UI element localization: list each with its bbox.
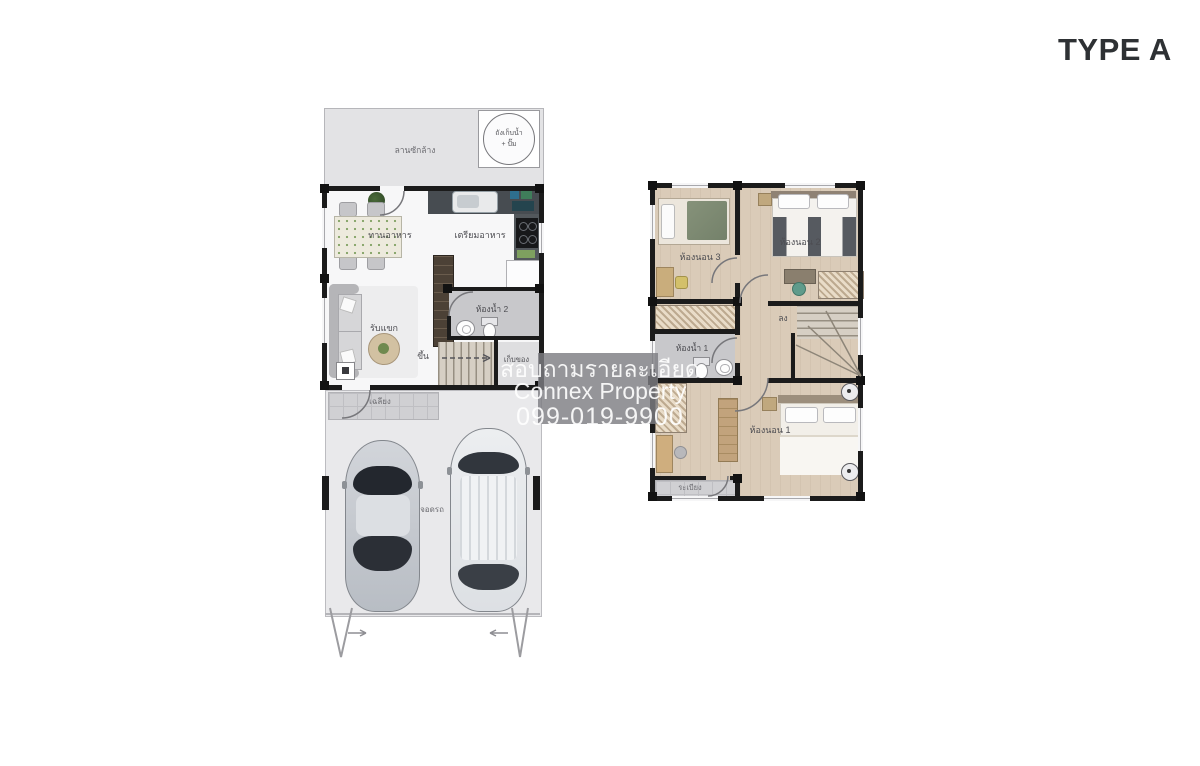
- wall: [404, 186, 544, 191]
- abs: [356, 495, 410, 536]
- mir: [342, 481, 347, 489]
- element: [348, 630, 366, 636]
- kitchen-item-dark: [512, 201, 534, 211]
- window: [322, 208, 327, 248]
- column-post: [535, 184, 544, 193]
- column-post: [733, 297, 742, 306]
- column-post: [533, 476, 540, 510]
- wall: [322, 186, 380, 191]
- window: [785, 183, 835, 188]
- abs: [329, 284, 359, 294]
- wall: [718, 496, 764, 501]
- bath1-sink: [715, 359, 733, 376]
- wall: [655, 329, 737, 334]
- bed1-nightstand: [762, 397, 777, 411]
- column-post: [856, 376, 865, 385]
- bed2-chair: [792, 282, 806, 296]
- laundry-label: ลานซักล้าง: [360, 146, 470, 155]
- element: [720, 364, 729, 373]
- bed3-wardrobe: [655, 305, 737, 331]
- watermark-line3: 099-019-9900: [485, 403, 715, 432]
- kitchen-item-blue: [510, 190, 519, 199]
- window: [539, 223, 544, 253]
- column-post: [535, 284, 544, 293]
- window: [672, 496, 718, 501]
- wall: [650, 239, 655, 341]
- water-tank-pump-icon: ถังเก็บน้ำ + ปั๊ม: [483, 113, 535, 165]
- bed-single: [658, 198, 730, 245]
- element: [462, 325, 471, 334]
- bed1-vanity: [656, 435, 673, 473]
- abs: [342, 367, 349, 374]
- abs: [378, 343, 389, 354]
- column-post: [733, 181, 742, 190]
- bedroom2-label: ห้องนอน 2: [760, 238, 840, 248]
- dining-label: ทานอาหาร: [348, 231, 432, 241]
- abs: [460, 476, 517, 561]
- floor2-plan: ห้องนอน 3 ห้องนอน 2 ห้องน้ำ 1 ลง ห้องนอน…: [650, 183, 868, 501]
- wall: [447, 287, 539, 291]
- car-suv: [450, 428, 527, 612]
- porch-label: เฉลียง: [340, 398, 420, 407]
- abs: [785, 407, 818, 423]
- stairs-up-label: ขึ้น: [410, 352, 436, 361]
- abs: [778, 194, 810, 209]
- column-post: [443, 284, 452, 293]
- column-post: [648, 297, 657, 306]
- dining-chair: [339, 202, 357, 217]
- car-sedan: [345, 440, 420, 612]
- column-post: [322, 476, 329, 510]
- cutting-board: [517, 250, 535, 258]
- sink-basin: [457, 195, 479, 208]
- kitchen-label: เตรียมอาหาร: [438, 231, 522, 241]
- bed2-nightstand: [758, 193, 772, 206]
- glass: [353, 466, 412, 495]
- window: [672, 183, 708, 188]
- ceiling-fixture: [841, 463, 859, 481]
- burner: [528, 235, 537, 244]
- wall: [768, 301, 863, 306]
- tank-label-1: ถังเก็บน้ำ: [495, 128, 522, 139]
- floorplan-sheet: { "page": { "title": "TYPE A" }, "colors…: [0, 0, 1200, 766]
- bathroom2-label: ห้องน้ำ 2: [457, 305, 527, 314]
- coffee-table: [368, 333, 400, 365]
- page-title: TYPE A: [1058, 32, 1172, 68]
- wall: [735, 188, 740, 255]
- burner: [528, 222, 537, 231]
- element: [847, 389, 851, 393]
- abs: [817, 194, 849, 209]
- column-post: [320, 274, 329, 283]
- bedroom1-label: ห้องนอน 1: [728, 426, 812, 436]
- column-post: [733, 474, 742, 483]
- parking-edge: [325, 613, 540, 615]
- wall: [447, 336, 539, 340]
- electric-panel: [336, 362, 355, 380]
- window: [858, 408, 863, 451]
- bed3-desk: [656, 267, 674, 297]
- bed3-chair: [675, 276, 688, 289]
- column-post: [648, 181, 657, 190]
- burner: [519, 222, 528, 231]
- mir: [525, 467, 530, 475]
- stairs-down: [797, 305, 858, 339]
- column-post: [648, 492, 657, 501]
- column-post: [320, 381, 329, 390]
- column-post: [320, 184, 329, 193]
- tank-label-2: + ปั๊ม: [501, 139, 516, 150]
- stairs-down-label: ลง: [768, 314, 798, 323]
- wall: [768, 378, 863, 383]
- column-post: [733, 376, 742, 385]
- abs: [687, 201, 727, 240]
- wall: [322, 248, 327, 298]
- wall: [655, 299, 735, 304]
- glass: [458, 452, 518, 474]
- element: [847, 469, 851, 473]
- glass: [458, 564, 518, 590]
- window: [650, 433, 655, 468]
- wall: [708, 183, 785, 188]
- wall: [791, 333, 795, 378]
- wall: [655, 476, 706, 480]
- column-post: [856, 492, 865, 501]
- window: [650, 205, 655, 239]
- mir: [447, 467, 452, 475]
- abs: [823, 407, 856, 423]
- dining-chair: [367, 202, 385, 217]
- bed1-stool: [674, 446, 687, 459]
- glass: [353, 536, 412, 570]
- window: [858, 318, 863, 355]
- mir: [418, 481, 423, 489]
- column-post: [856, 181, 865, 190]
- abs: [661, 204, 675, 239]
- wall: [735, 283, 740, 335]
- kitchen-item-green: [521, 190, 532, 199]
- bath2-sink: [456, 320, 475, 337]
- watermark-line2: Connex Property: [485, 378, 715, 405]
- balcony-label: ระเบียง: [660, 484, 720, 492]
- bedroom3-label: ห้องนอน 3: [660, 253, 740, 263]
- element: [490, 630, 508, 636]
- wall: [858, 183, 863, 318]
- ceiling-fixture: [841, 383, 859, 401]
- kitchen-sink: [452, 191, 498, 213]
- window: [322, 298, 327, 343]
- window: [764, 496, 810, 501]
